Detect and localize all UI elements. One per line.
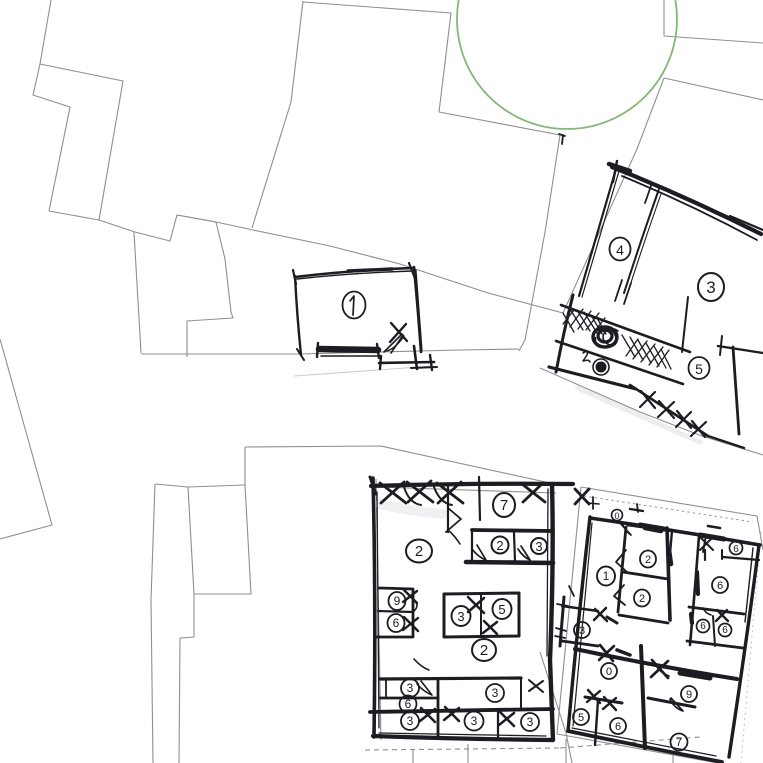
svg-text:7: 7: [500, 497, 508, 514]
svg-text:5: 5: [498, 602, 505, 617]
svg-text:6: 6: [700, 621, 706, 632]
svg-text:3: 3: [457, 609, 464, 624]
svg-text:6: 6: [393, 616, 400, 630]
svg-text:6: 6: [615, 721, 621, 733]
svg-text:3: 3: [407, 714, 414, 728]
svg-text:6: 6: [733, 544, 739, 555]
svg-text:2: 2: [639, 593, 645, 605]
svg-text:9: 9: [686, 689, 692, 701]
svg-text:3: 3: [471, 714, 478, 728]
svg-text:3: 3: [407, 681, 414, 695]
svg-text:2: 2: [415, 543, 423, 560]
svg-text:7: 7: [676, 735, 683, 749]
svg-text:2: 2: [645, 554, 651, 566]
svg-text:3: 3: [492, 686, 499, 700]
svg-text:6: 6: [717, 580, 723, 592]
svg-text:4: 4: [616, 242, 624, 258]
svg-text:3: 3: [706, 278, 715, 297]
svg-text:3: 3: [527, 715, 534, 729]
svg-text:3: 3: [535, 539, 542, 554]
svg-text:3: 3: [579, 625, 585, 637]
svg-text:6: 6: [722, 625, 728, 636]
svg-text:5: 5: [578, 712, 584, 724]
svg-text:5: 5: [695, 361, 703, 377]
svg-text:0: 0: [606, 666, 612, 678]
svg-text:0: 0: [614, 511, 619, 521]
svg-text:9: 9: [394, 594, 401, 608]
svg-text:1: 1: [603, 569, 610, 583]
svg-text:6: 6: [405, 697, 412, 711]
svg-text:2: 2: [496, 538, 503, 553]
svg-text:2: 2: [480, 642, 488, 659]
